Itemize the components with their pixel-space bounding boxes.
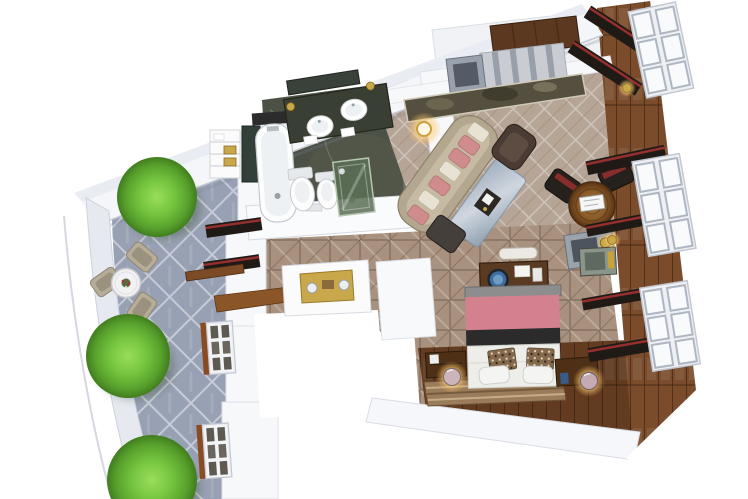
bed-pink-throw bbox=[465, 295, 560, 331]
floor-plan-image bbox=[0, 0, 748, 499]
gold-towel bbox=[224, 146, 236, 154]
niche-decor bbox=[322, 280, 334, 289]
wall-sconce bbox=[618, 79, 636, 97]
window-unit bbox=[200, 321, 236, 375]
floor-lamp bbox=[407, 112, 441, 146]
table-card bbox=[579, 194, 605, 211]
terrace-table bbox=[112, 269, 141, 298]
shower bbox=[333, 158, 375, 216]
bedside-sphere-lamp bbox=[573, 365, 605, 397]
corridor-lower-wall bbox=[254, 310, 386, 418]
bed-cushion bbox=[478, 365, 509, 385]
wall-cabinet bbox=[579, 247, 616, 276]
floor-plan-svg bbox=[0, 0, 748, 499]
desk-papers bbox=[515, 265, 530, 277]
towel-shelf bbox=[210, 130, 240, 178]
console-lamp bbox=[307, 283, 317, 293]
bedside-sphere-lamp bbox=[436, 361, 468, 393]
console-lamp bbox=[339, 280, 349, 290]
wall-sconce bbox=[603, 231, 621, 249]
bed bbox=[465, 285, 564, 388]
gold-towel bbox=[224, 158, 236, 166]
console-with-gold-niche bbox=[282, 260, 371, 316]
corridor-pillar-wall bbox=[376, 258, 436, 340]
window-unit bbox=[196, 423, 232, 479]
bed-cushion bbox=[523, 366, 553, 384]
bench bbox=[499, 247, 537, 259]
